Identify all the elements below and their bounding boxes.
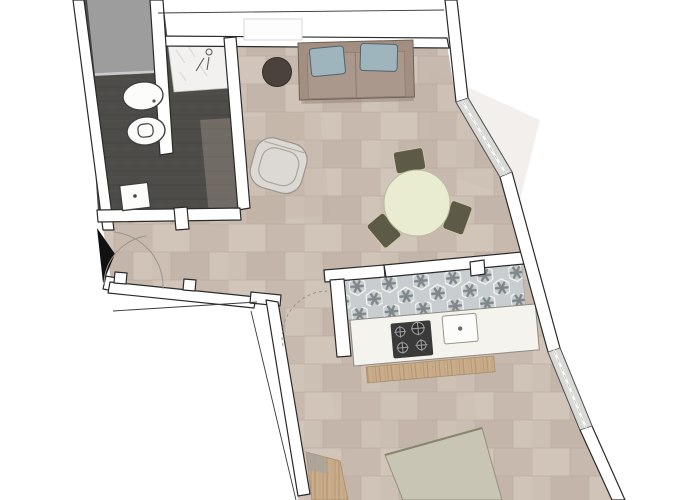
sofa (298, 40, 415, 104)
wall-bathroom-bottom (97, 208, 241, 222)
wall-notch (183, 279, 196, 291)
gray-area-floor (87, 0, 157, 76)
wall-door-jamb (174, 207, 189, 230)
floor-plan (0, 0, 700, 500)
pouf (263, 58, 292, 87)
wall-niche (244, 19, 302, 40)
washbasin (120, 182, 151, 210)
sofa-pillow (309, 46, 346, 77)
sofa-pillow (360, 43, 398, 71)
wall-notch (114, 272, 127, 284)
toilet-valve (152, 99, 155, 102)
dining-table (384, 170, 450, 236)
floor-plan-page (0, 0, 700, 500)
exterior-line-top (158, 10, 444, 13)
wall-kitchen-stub (470, 260, 485, 276)
